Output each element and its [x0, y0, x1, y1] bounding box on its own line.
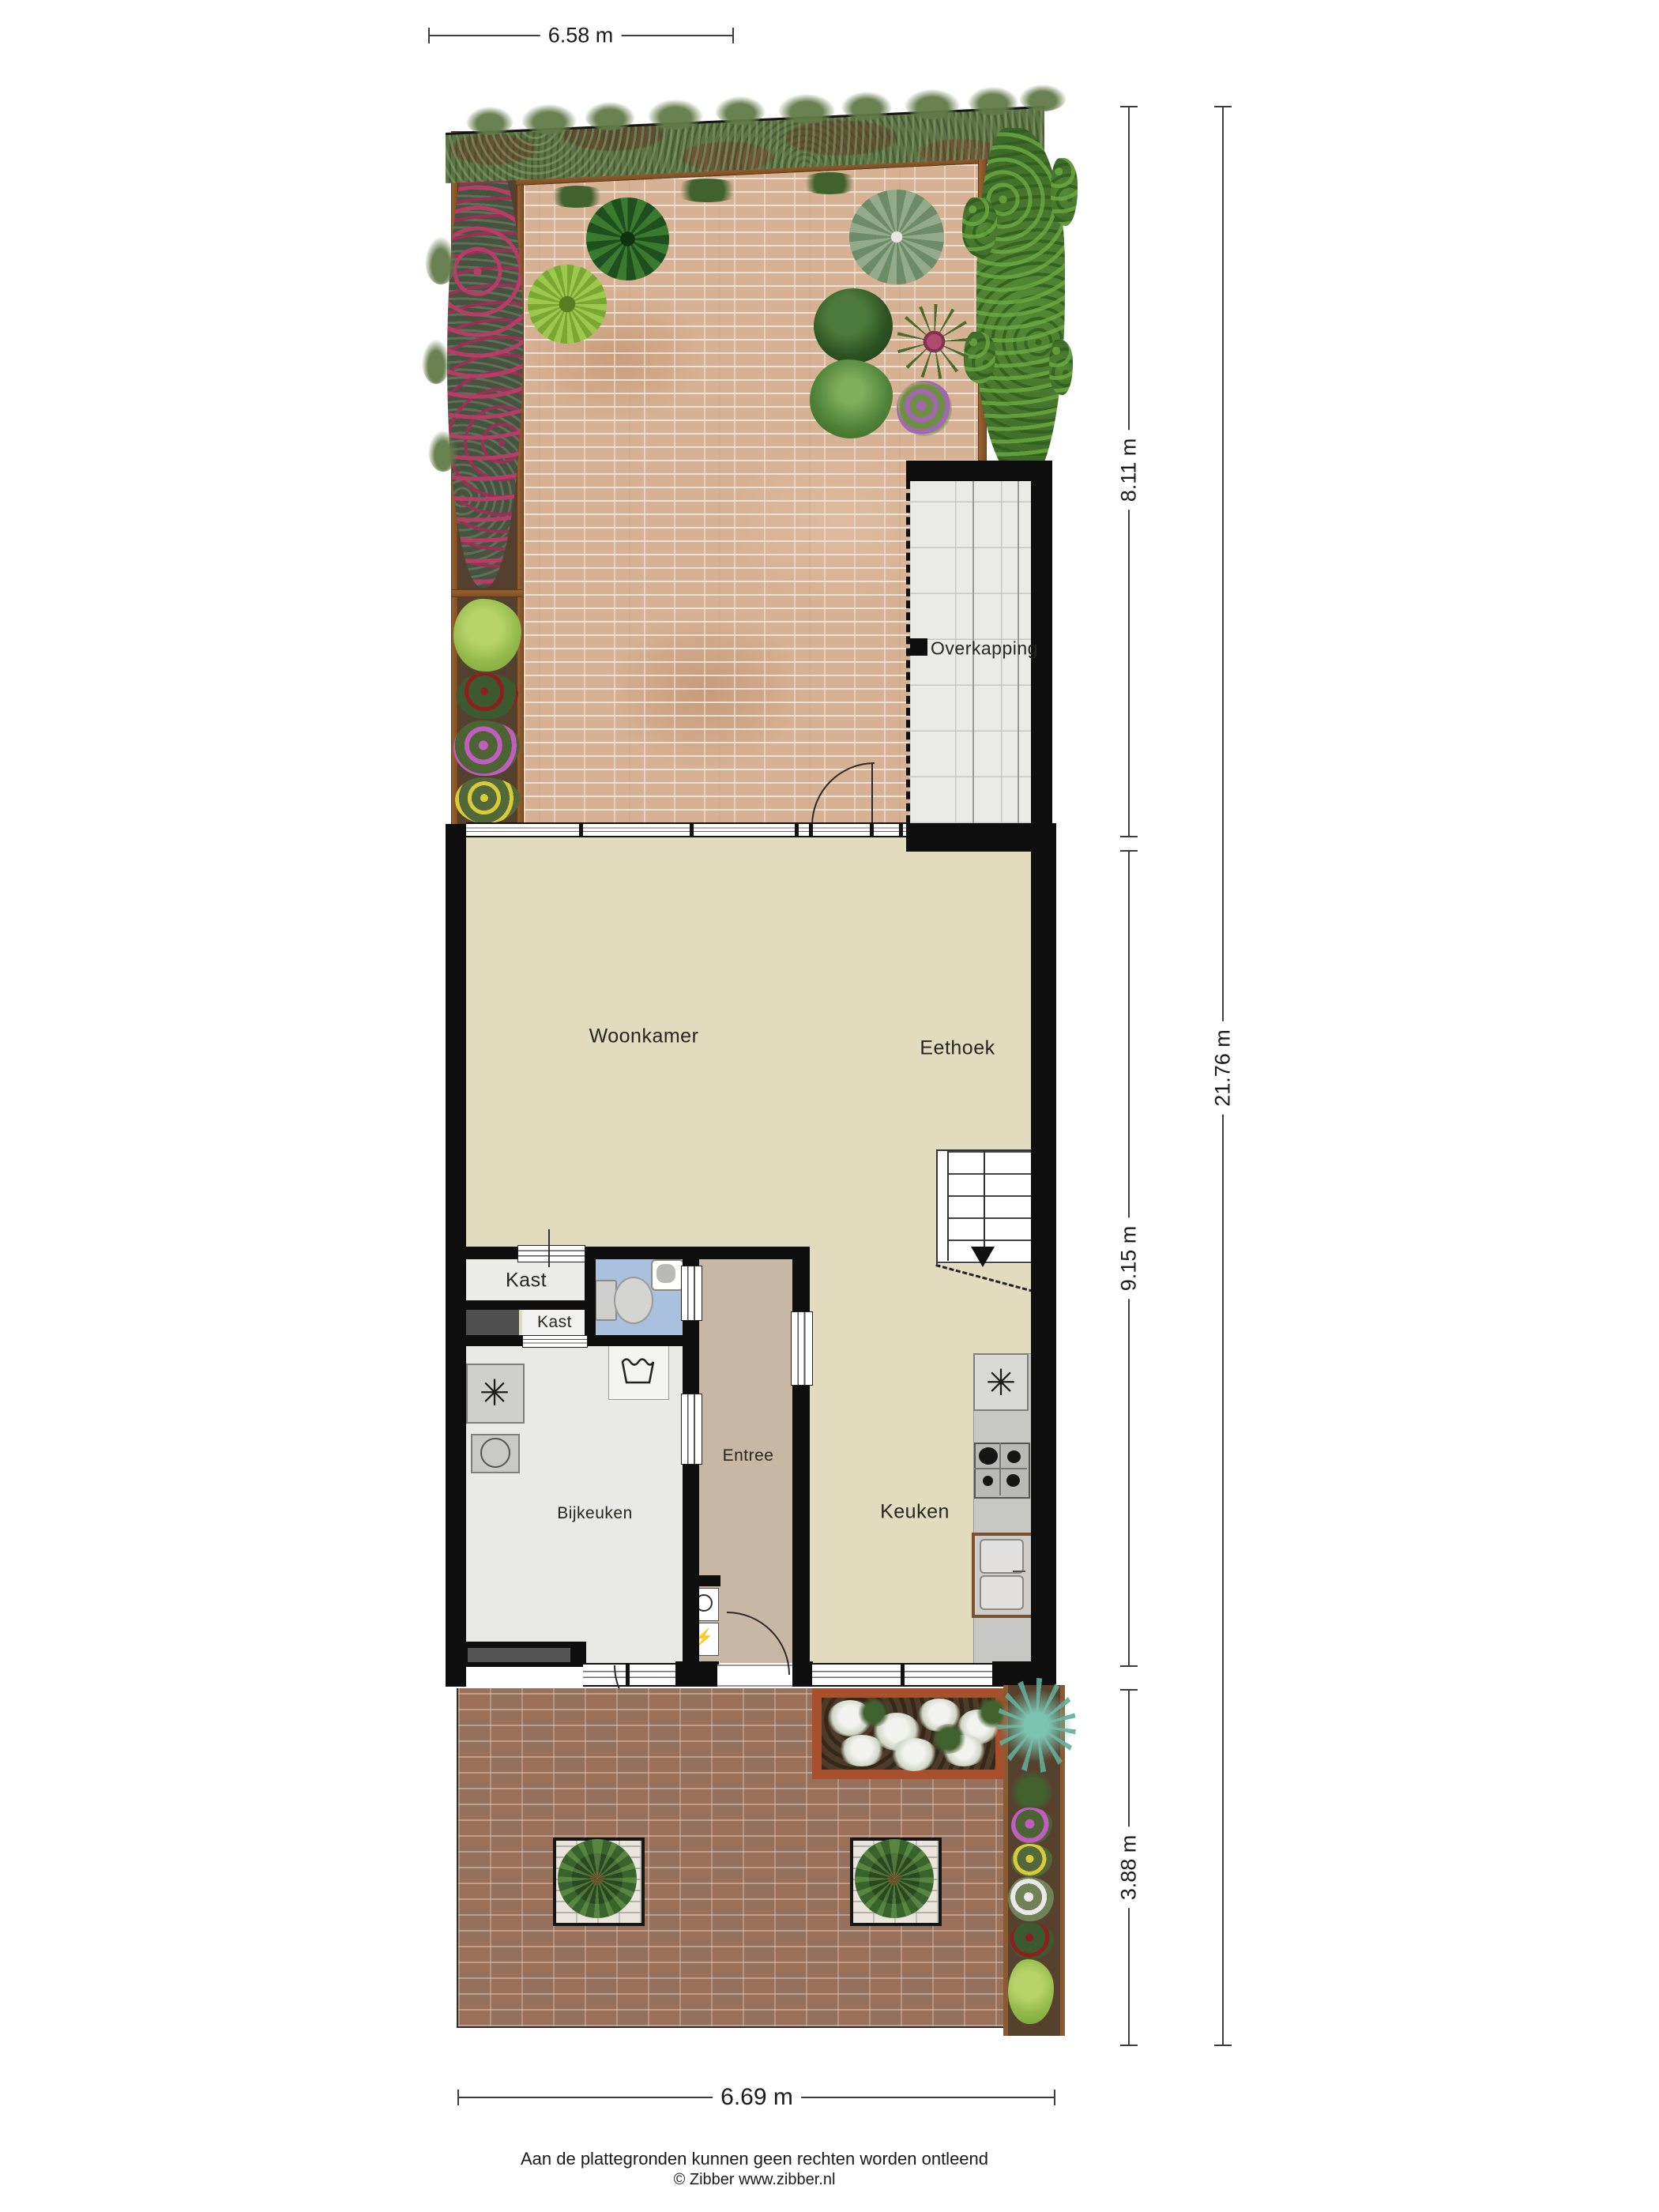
room-label-eethoek: Eethoek — [920, 1037, 995, 1060]
dimension-label-front-garden: 3.88 m — [1115, 1827, 1143, 1909]
garden-door-leaf — [871, 762, 873, 826]
window-mullion — [901, 1663, 905, 1687]
keuken-doorway — [791, 1311, 813, 1386]
rear-sliding-doors — [466, 822, 906, 837]
room-label-kast-boven: Kast — [506, 1270, 547, 1292]
stove-burner — [983, 1476, 993, 1486]
room-label-overkapping: Overkapping — [931, 638, 1038, 660]
window-mullion — [690, 822, 694, 837]
dark-cabinet — [466, 1308, 519, 1337]
stairs-down-arrow-icon — [971, 1247, 995, 1267]
overkapping-wall-bottom — [906, 823, 1056, 852]
dimension-tick — [1120, 1665, 1138, 1667]
ivy-overhang — [798, 172, 861, 194]
footer-disclaimer: Aan de plattegronden kunnen geen rechten… — [521, 2149, 988, 2169]
front-door-post — [675, 1661, 719, 1687]
plant-sprig — [466, 107, 513, 135]
wall-right — [1031, 824, 1056, 1687]
right-hedge-bump — [962, 197, 997, 258]
planter-shrub-icon — [558, 1839, 637, 1918]
plant-sprig — [715, 96, 766, 125]
overkapping-post — [910, 638, 927, 656]
window-mullion — [899, 822, 903, 837]
white-flower — [839, 1735, 885, 1766]
room-label-kast-onder: Kast — [537, 1313, 572, 1332]
spiky-flower-plant — [897, 304, 972, 379]
plant-sprig — [905, 89, 960, 119]
bijkeuken-door — [681, 1394, 702, 1465]
kast-onder-door — [522, 1335, 588, 1348]
green-bush — [814, 288, 893, 363]
dimension-label-total: 21.76 m — [1209, 1021, 1237, 1115]
extractor-fan-icon: ✳ — [986, 1361, 1017, 1404]
footer-copyright: © Zibber www.zibber.nl — [674, 2171, 836, 2189]
room-label-bijkeuken: Bijkeuken — [557, 1504, 633, 1523]
ivy-overhang — [545, 186, 608, 208]
ventilation-fan-icon: ✳ — [480, 1371, 510, 1414]
plant-sprig — [585, 102, 635, 130]
lime-spiky-plant — [528, 265, 607, 344]
ivy-overhang — [671, 179, 743, 202]
dimension-tick — [1120, 2045, 1138, 2046]
dimension-tick — [1120, 836, 1138, 837]
stove-burner — [1006, 1474, 1020, 1487]
right-hedge-bump — [1049, 340, 1073, 395]
dimension-label-garden: 8.11 m — [1115, 431, 1143, 510]
white-flower — [891, 1738, 937, 1771]
dimension-tick — [732, 28, 734, 43]
stairs-stringer — [938, 1151, 949, 1261]
room-label-keuken: Keuken — [880, 1501, 950, 1524]
toilet-icon — [614, 1277, 653, 1324]
stove-burner — [979, 1447, 998, 1465]
wc-sink-basin — [656, 1264, 675, 1283]
plant-sprig — [778, 94, 835, 124]
dimension-label-bottom: 6.69 m — [713, 2082, 801, 2112]
dimension-tick — [1214, 106, 1232, 107]
bed-foliage — [931, 1724, 967, 1754]
plant-sprig — [968, 87, 1018, 115]
dimension-label-house: 9.15 m — [1115, 1218, 1143, 1300]
bed-foliage — [857, 1698, 890, 1727]
sink-tap — [1013, 1571, 1025, 1572]
planter-shrub-icon — [855, 1839, 934, 1918]
plant-sprig — [428, 431, 458, 472]
wall-kast-bottom — [446, 1300, 596, 1310]
border-foliage — [1010, 1771, 1054, 1812]
dimension-tick — [1120, 850, 1138, 852]
palm-plant — [586, 197, 669, 280]
laundry-tub-icon — [620, 1356, 656, 1387]
dimension-label-top: 6.58 m — [540, 22, 622, 50]
sink-basin — [980, 1575, 1024, 1610]
wall-entree-right — [792, 1247, 810, 1663]
floor-plan-canvas: 6.58 m 8.11 m 9.15 m 3.88 m 21.76 m 6.69… — [0, 0, 1659, 2212]
stove-burner — [1007, 1450, 1021, 1463]
dimension-tick — [1120, 1689, 1138, 1691]
room-label-entree: Entree — [723, 1446, 774, 1465]
dimension-tick — [1120, 106, 1138, 107]
dimension-tick — [457, 2090, 459, 2105]
window-mullion — [870, 822, 874, 837]
dimension-tick — [1054, 2090, 1055, 2105]
teal-plant — [997, 1678, 1076, 1773]
stairs-center-rail — [984, 1149, 985, 1262]
wc-door — [681, 1266, 702, 1321]
sink-basin — [980, 1539, 1024, 1574]
room-label-woonkamer: Woonkamer — [589, 1025, 699, 1048]
plant-sprig — [648, 100, 703, 130]
right-hedge-bump — [1051, 158, 1078, 226]
plant-sprig — [1019, 85, 1066, 111]
stove-grid-line — [999, 1443, 1001, 1495]
plant-sprig — [422, 340, 450, 384]
plant-sprig — [521, 104, 577, 134]
front-wall-mid — [792, 1661, 813, 1687]
agave-plant — [849, 190, 944, 284]
dimension-tick — [428, 28, 430, 43]
plant-sprig — [425, 237, 457, 284]
wall-interior-top — [446, 1247, 808, 1259]
front-low-window — [468, 1648, 570, 1662]
purple-flower-bush — [897, 381, 952, 436]
plant-sprig — [841, 92, 892, 120]
washer-drum — [480, 1438, 510, 1468]
border-wood-divider — [451, 589, 524, 597]
kast-door-tick — [548, 1229, 550, 1267]
dimension-tick — [1214, 2045, 1232, 2046]
wall-kast-divider — [585, 1247, 596, 1346]
window-mullion — [795, 822, 799, 837]
window-mullion — [579, 822, 583, 837]
kast-boven-door — [517, 1245, 585, 1262]
window-mullion — [809, 822, 813, 837]
